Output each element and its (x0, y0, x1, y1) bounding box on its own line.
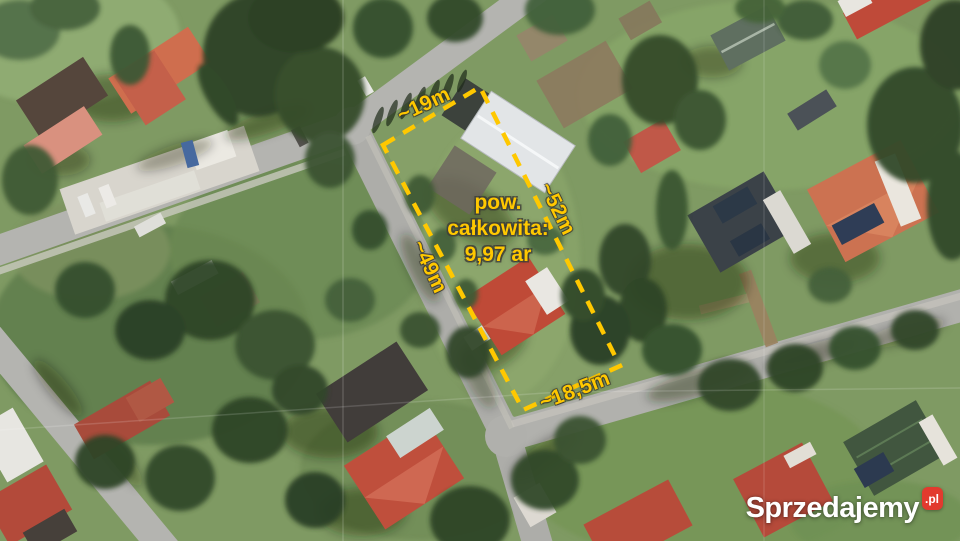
area-label-line-1: pow. (447, 190, 549, 216)
watermark-badge: .pl (922, 487, 943, 510)
watermark-brand: Sprzedajemy (746, 494, 919, 523)
area-label-line-2: całkowita: (447, 216, 549, 242)
plot-area-label: pow. całkowita: 9,97 ar (447, 190, 549, 268)
scene-svg (0, 0, 960, 541)
watermark: Sprzedajemy .pl (746, 494, 943, 523)
aerial-photo: ~19m ~52m ~49m ~18,5m pow. całkowita: 9,… (0, 0, 960, 541)
area-label-line-3: 9,97 ar (447, 242, 549, 268)
